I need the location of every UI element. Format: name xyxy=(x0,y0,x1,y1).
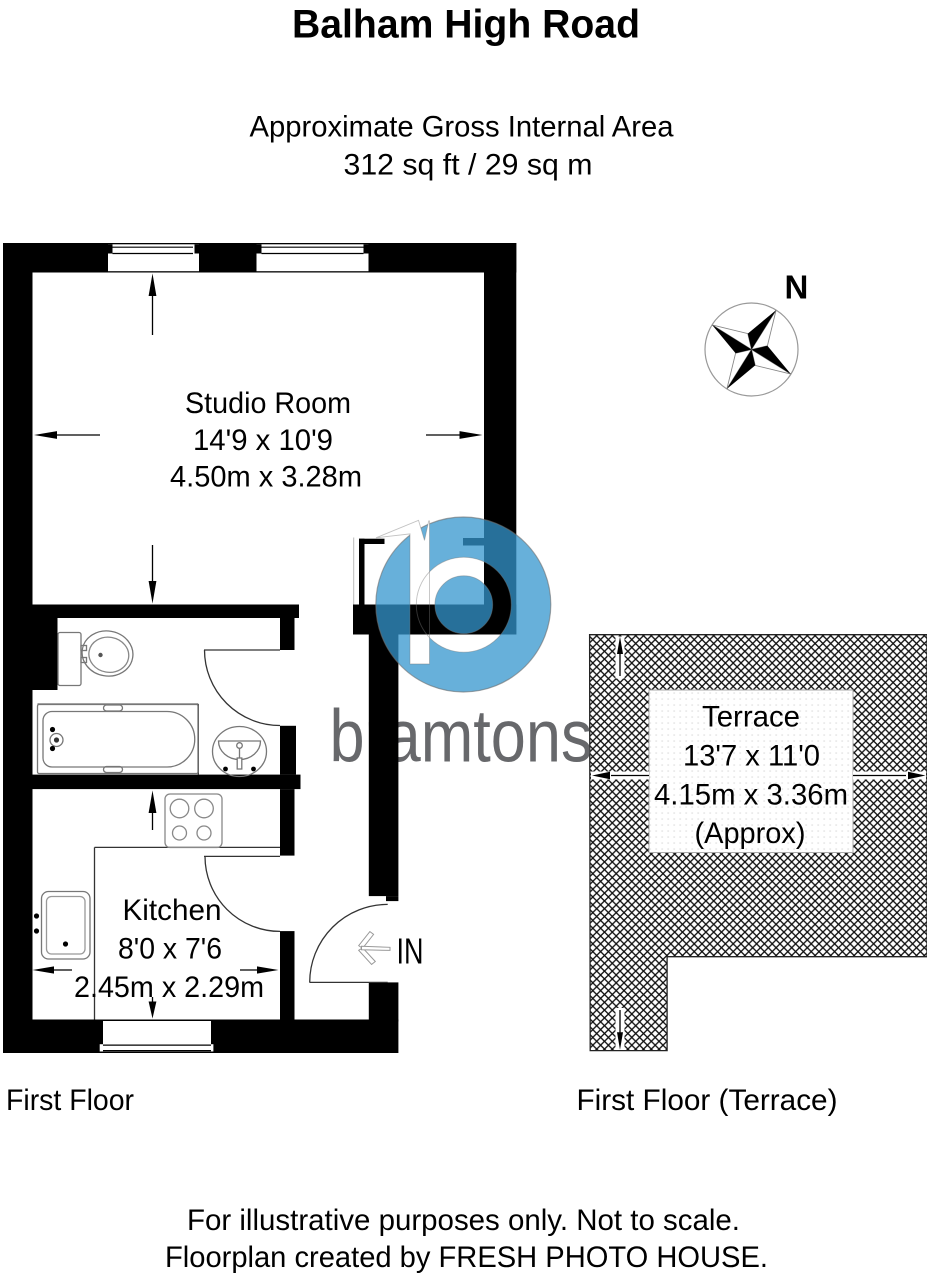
svg-text:4.50m x 3.28m: 4.50m x 3.28m xyxy=(170,461,362,494)
svg-text:2.45m x 2.29m: 2.45m x 2.29m xyxy=(74,971,264,1004)
svg-text:IN: IN xyxy=(397,930,424,971)
svg-text:Studio Room: Studio Room xyxy=(185,387,351,420)
svg-text:4.15m x 3.36m: 4.15m x 3.36m xyxy=(654,779,848,812)
svg-text:14'9 x 10'9: 14'9 x 10'9 xyxy=(193,424,333,457)
svg-text:312 sq ft / 29 sq m: 312 sq ft / 29 sq m xyxy=(344,149,593,182)
svg-text:N: N xyxy=(785,269,809,306)
svg-text:(Approx): (Approx) xyxy=(695,817,806,850)
svg-text:Floorplan created by FRESH PHO: Floorplan created by FRESH PHOTO HOUSE. xyxy=(165,1241,768,1274)
svg-text:First Floor: First Floor xyxy=(6,1084,134,1117)
svg-text:8'0 x 7'6: 8'0 x 7'6 xyxy=(118,933,222,966)
svg-text:Terrace: Terrace xyxy=(702,701,800,734)
svg-text:13'7 x 11'0: 13'7 x 11'0 xyxy=(683,740,820,773)
svg-text:First Floor (Terrace): First Floor (Terrace) xyxy=(577,1084,838,1117)
svg-text:For illustrative purposes only: For illustrative purposes only. Not to s… xyxy=(187,1204,740,1237)
svg-text:Approximate Gross Internal Are: Approximate Gross Internal Area xyxy=(250,111,674,144)
svg-text:Kitchen: Kitchen xyxy=(123,894,222,927)
svg-text:Balham High Road: Balham High Road xyxy=(292,3,640,47)
